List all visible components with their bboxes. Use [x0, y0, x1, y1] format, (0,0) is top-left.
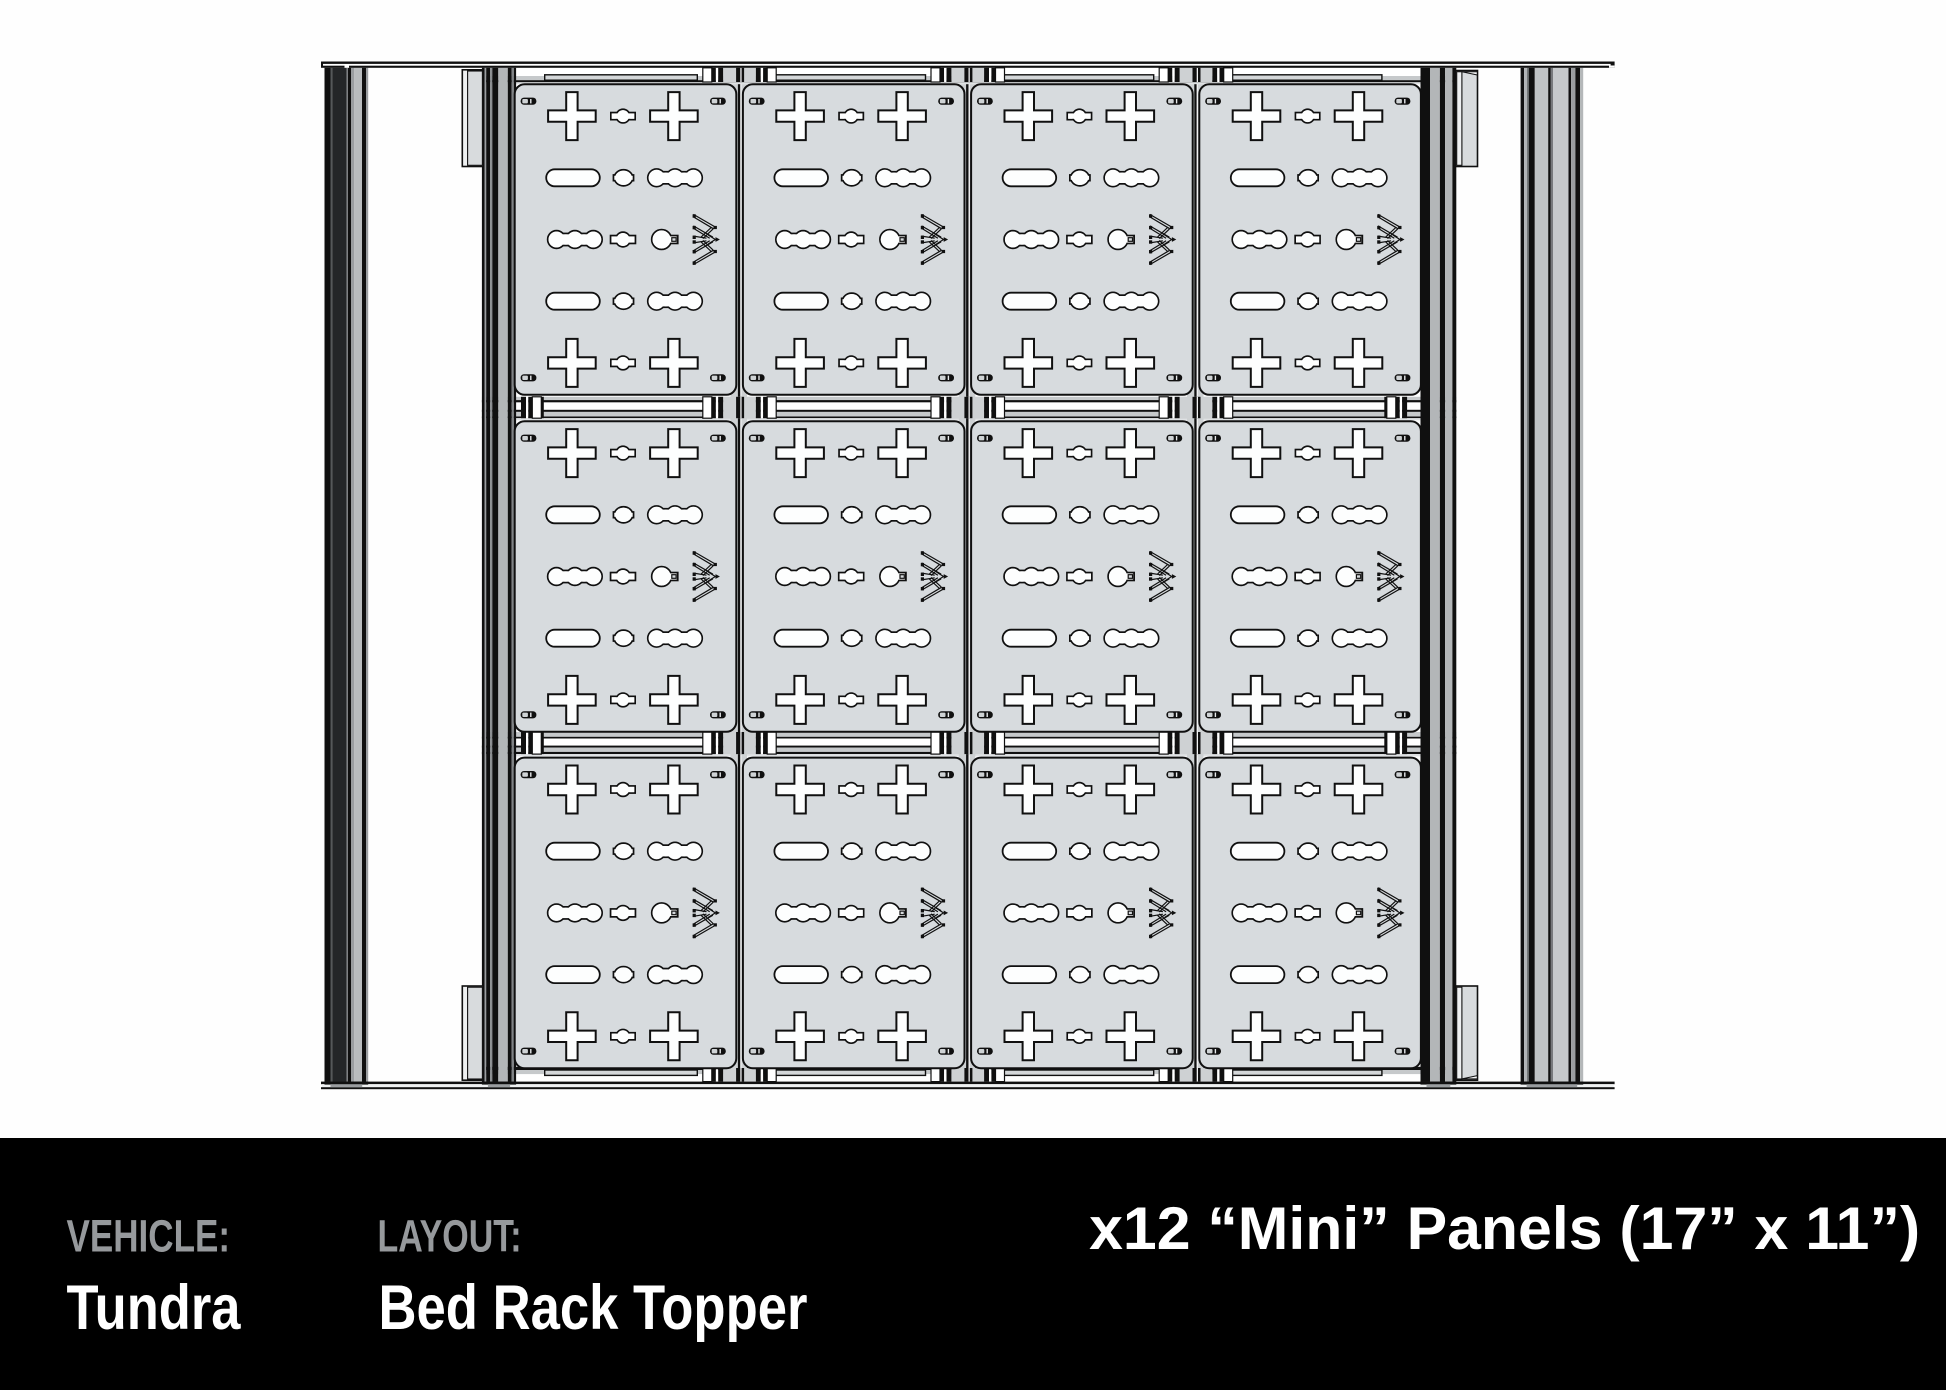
- svg-text:LAYOUT:: LAYOUT:: [378, 1211, 522, 1262]
- svg-text:Tundra: Tundra: [67, 1273, 242, 1343]
- svg-text:x12 “Mini” Panels (17” x 11”): x12 “Mini” Panels (17” x 11”): [1089, 1195, 1920, 1262]
- svg-text:VEHICLE:: VEHICLE:: [67, 1211, 231, 1262]
- svg-text:Bed Rack Topper: Bed Rack Topper: [379, 1273, 808, 1343]
